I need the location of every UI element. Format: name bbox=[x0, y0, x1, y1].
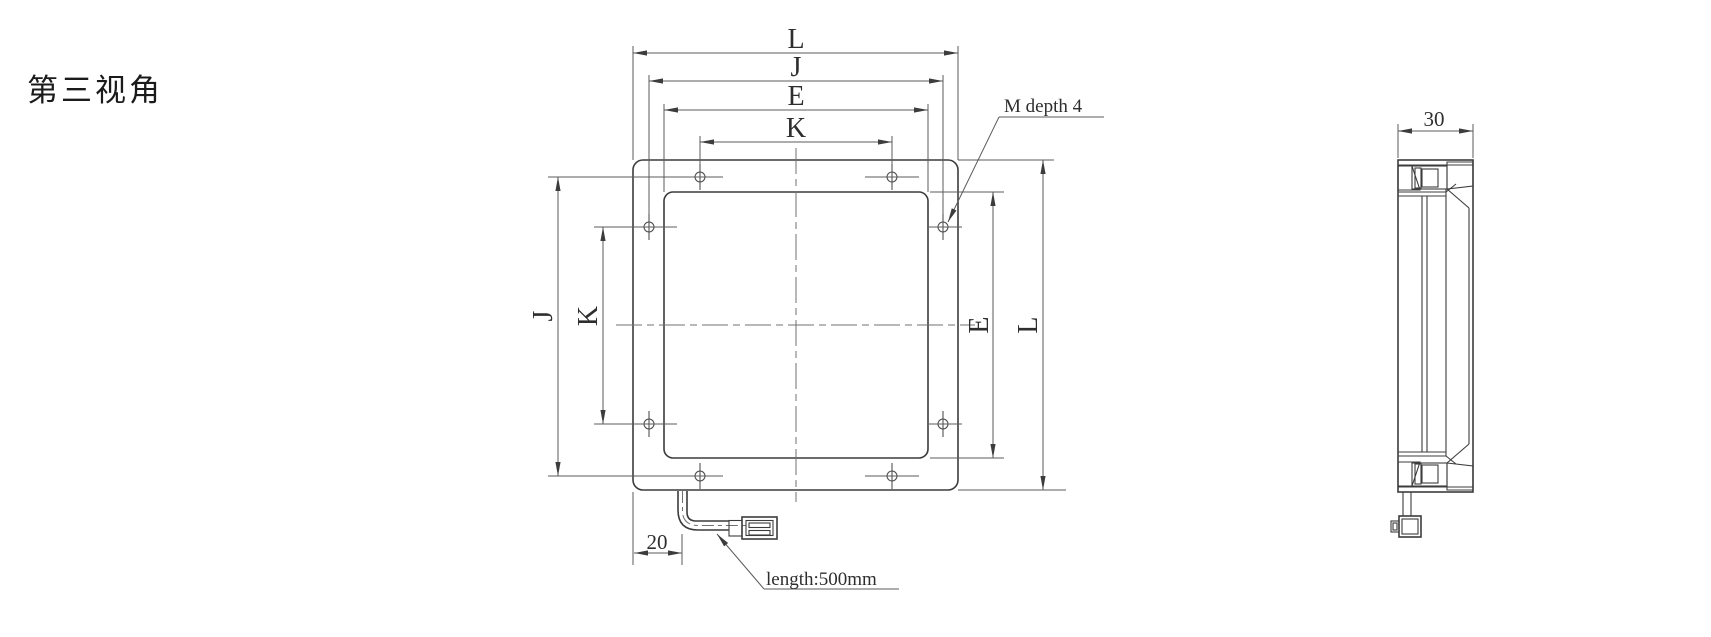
side-view: 30 bbox=[1391, 107, 1473, 537]
thread-callout-label: M depth 4 bbox=[1004, 96, 1083, 117]
dim-side-thickness-30: 30 bbox=[1398, 107, 1473, 158]
dim-label-K-top: K bbox=[786, 113, 806, 144]
dim-label-E-right: E bbox=[964, 316, 995, 333]
dim-cable-offset-20: 20 bbox=[633, 492, 682, 565]
dim-label-J-left: J bbox=[528, 310, 559, 321]
side-outline bbox=[1398, 160, 1473, 492]
dim-left-hole-pitch-J: J bbox=[528, 177, 723, 476]
cable-length-label: length:500mm bbox=[766, 569, 877, 590]
view-title: 第三视角 bbox=[27, 73, 163, 109]
side-internal-layers bbox=[1422, 189, 1469, 456]
cable-inner-edge bbox=[687, 491, 729, 521]
dim-label-30: 30 bbox=[1424, 107, 1445, 131]
side-cable-connector bbox=[1391, 492, 1421, 537]
section-hatch-bottom bbox=[1398, 444, 1473, 490]
dim-label-20: 20 bbox=[647, 530, 668, 554]
dim-label-K-left: K bbox=[573, 306, 604, 326]
cable-length-leader-line bbox=[717, 534, 764, 589]
drawing-sheet: 第三视角 bbox=[0, 0, 1711, 637]
side-outer-profile bbox=[1398, 160, 1473, 492]
power-cable bbox=[678, 491, 777, 539]
dim-label-L-right: L bbox=[1013, 316, 1044, 333]
center-lines bbox=[616, 148, 975, 502]
cable-length-callout: length:500mm bbox=[717, 534, 899, 590]
front-view: L J E K J K bbox=[528, 24, 1104, 590]
thread-leader-line bbox=[948, 117, 999, 222]
mounting-holes bbox=[636, 164, 962, 489]
cable-connector bbox=[729, 517, 777, 539]
thread-callout: M depth 4 bbox=[948, 96, 1104, 222]
technical-drawing: 第三视角 bbox=[0, 0, 1711, 637]
dim-label-E-top: E bbox=[787, 81, 804, 112]
side-cable bbox=[1403, 492, 1411, 516]
hole-axis-lines bbox=[865, 177, 962, 476]
section-hatch-top bbox=[1398, 162, 1473, 208]
dim-label-J-top: J bbox=[791, 52, 802, 83]
cable-outer-edge bbox=[678, 491, 729, 530]
dim-label-L-top: L bbox=[787, 24, 804, 55]
